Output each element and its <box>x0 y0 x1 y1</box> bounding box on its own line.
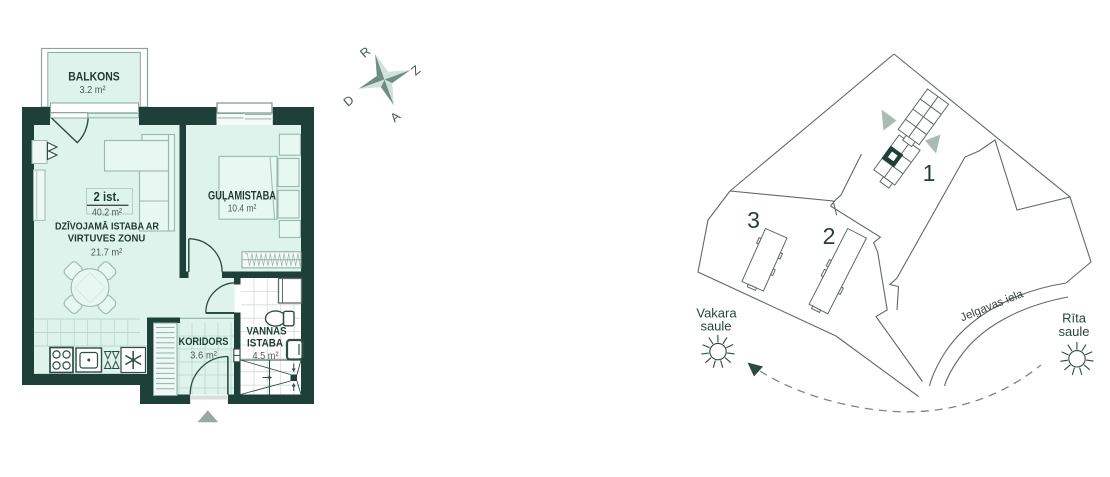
svg-text:VANNAS: VANNAS <box>247 326 287 338</box>
svg-text:GUĻAMISTABA: GUĻAMISTABA <box>208 189 276 203</box>
svg-text:3.2 m²: 3.2 m² <box>80 84 106 96</box>
svg-text:2 ist.: 2 ist. <box>94 189 120 204</box>
svg-text:DZĪVOJAMĀ ISTABA AR: DZĪVOJAMĀ ISTABA AR <box>55 221 159 233</box>
svg-text:10.4 m²: 10.4 m² <box>228 202 257 214</box>
svg-text:40.2 m²: 40.2 m² <box>92 206 122 218</box>
svg-text:3: 3 <box>747 207 760 233</box>
svg-text:saule: saule <box>700 319 731 334</box>
svg-text:ISTABA: ISTABA <box>247 338 283 350</box>
svg-text:4.5 m²: 4.5 m² <box>253 350 279 362</box>
svg-text:BALKONS: BALKONS <box>68 70 120 84</box>
svg-text:1: 1 <box>923 160 936 186</box>
svg-text:2: 2 <box>823 223 836 249</box>
svg-text:3.6 m²: 3.6 m² <box>190 350 217 362</box>
svg-text:VIRTUVES ZONU: VIRTUVES ZONU <box>68 232 146 244</box>
svg-text:KORIDORS: KORIDORS <box>179 336 229 348</box>
svg-text:21.7 m²: 21.7 m² <box>91 246 123 258</box>
svg-text:saule: saule <box>1058 324 1089 339</box>
